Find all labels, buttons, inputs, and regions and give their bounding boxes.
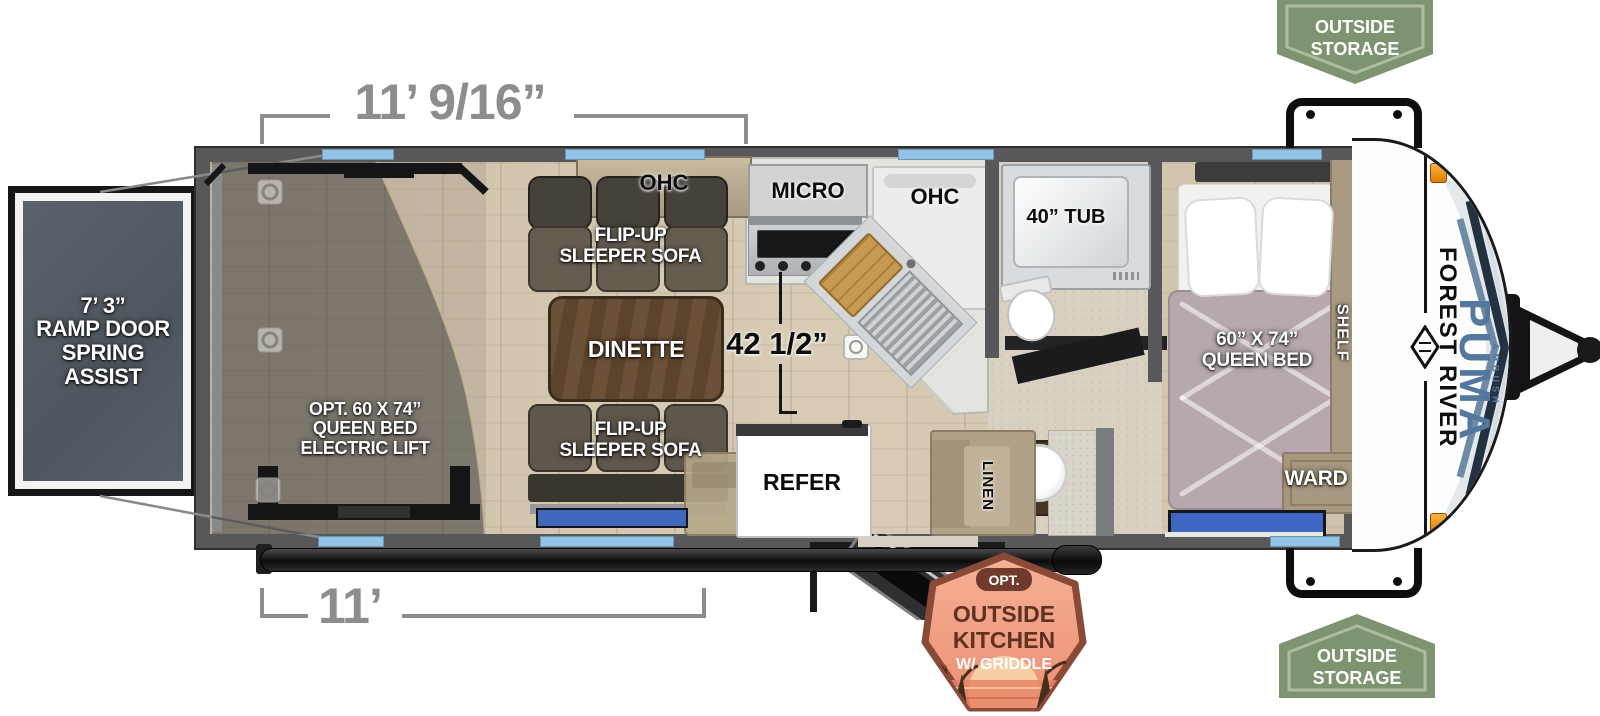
front-cap: FOREST RIVER PUMA AMBUSH xyxy=(1352,138,1512,552)
refrigerator-handle xyxy=(842,420,862,428)
sofa-bottom-label-line1: FLIP-UP xyxy=(595,419,667,440)
linen-cabinet-face: LINEN xyxy=(964,446,1010,526)
window-top-1 xyxy=(322,149,394,160)
outside-kitchen-badge: OPT. OUTSIDE KITCHEN W/ GRIDDLE xyxy=(918,552,1090,716)
dinette-table: DINETTE xyxy=(548,296,724,402)
garage-label-line2: QUEEN BED xyxy=(313,418,417,438)
ramp-door: 7’ 3” RAMP DOOR SPRING ASSIST xyxy=(8,186,198,496)
top-dim-seg-right xyxy=(574,114,746,118)
outside-kitchen-line3: W/ GRIDDLE xyxy=(956,656,1052,673)
top-dim-tick-right xyxy=(744,114,748,144)
brand-rule-top xyxy=(1424,153,1427,313)
bottom-dim-tick-right xyxy=(702,588,706,618)
sofa-bottom-label-line2: SLEEPER SOFA xyxy=(559,440,701,461)
window-bottom-1 xyxy=(318,536,384,547)
wardrobe-label-text: WARD xyxy=(1285,468,1348,491)
ohc-left-label: OHC xyxy=(624,170,704,196)
bottom-dim-tick-left xyxy=(260,588,264,618)
storage-top-line2: STORAGE xyxy=(1311,39,1400,59)
ramp-label-line1: 7’ 3” xyxy=(81,293,126,318)
ohc-left-label-text: OHC xyxy=(640,171,689,194)
ohc-right-label-text: OHC xyxy=(911,185,960,208)
kitchen-dim-line-lower xyxy=(779,364,782,414)
storage-bottom-line2: STORAGE xyxy=(1313,668,1402,688)
window-bottom-3 xyxy=(1270,536,1340,547)
bed-pillow-left xyxy=(1183,196,1260,298)
window-top-3 xyxy=(898,149,994,160)
roof-rack-bottom xyxy=(1286,548,1422,598)
sofa-bottom-label: FLIP-UP SLEEPER SOFA xyxy=(538,420,723,461)
bottom-dim-seg-left xyxy=(262,614,308,618)
refrigerator-label: REFER xyxy=(742,468,862,496)
sofa-top-label: FLIP-UP SLEEPER SOFA xyxy=(538,226,723,267)
tub-label-text: 40” TUB xyxy=(1027,207,1106,228)
bottom-dim-seg-right xyxy=(402,614,704,618)
entry-door-sill xyxy=(858,536,978,547)
garage-bed-label: OPT. 60 X 74” QUEEN BED ELECTRIC LIFT xyxy=(280,400,450,458)
outside-kitchen-opt: OPT. xyxy=(988,572,1019,588)
top-dim-tick-left xyxy=(260,114,264,144)
wardrobe-label: WARD xyxy=(1280,466,1352,492)
roof-rack-top xyxy=(1286,98,1422,148)
bottom-dim-text: 11’ xyxy=(300,578,400,634)
garage-label-line3: ELECTRIC LIFT xyxy=(300,438,429,458)
ramp-label-line3: SPRING xyxy=(62,340,145,365)
shelf-label: SHELF xyxy=(1330,294,1354,372)
linen-cabinet: LINEN xyxy=(930,430,1036,536)
outside-kitchen-line1: OUTSIDE xyxy=(953,601,1055,627)
garage-lining xyxy=(212,164,222,532)
ramp-label-line2: RAMP DOOR xyxy=(36,316,170,341)
kitchen-dim-value: 42 1/2” xyxy=(726,328,828,361)
brand-rule-bottom xyxy=(1424,381,1427,541)
storage-top-line1: OUTSIDE xyxy=(1315,17,1395,37)
top-dim-value: 11’ 9/16” xyxy=(354,73,545,131)
bath-partition-wall xyxy=(1096,428,1114,536)
refer-label-text: REFER xyxy=(763,470,841,494)
bottom-dim-value: 11’ xyxy=(318,577,382,635)
queen-bed-label-line2: QUEEN BED xyxy=(1202,350,1312,371)
clearance-light-bottom xyxy=(1430,513,1447,533)
dinette-label: DINETTE xyxy=(588,337,684,362)
floorplan-canvas: 7’ 3” RAMP DOOR SPRING ASSIST xyxy=(0,0,1600,716)
storage-bottom-line1: OUTSIDE xyxy=(1317,646,1397,666)
top-dim-text: 11’ 9/16” xyxy=(330,76,570,128)
window-bottom-2 xyxy=(540,536,674,547)
tub-label: 40” TUB xyxy=(1006,204,1126,230)
sofa-top-label-line2: SLEEPER SOFA xyxy=(559,246,701,267)
bed-headboard xyxy=(1195,162,1335,182)
kitchen-dim-text: 42 1/2” xyxy=(712,326,842,362)
bed-pillow-right xyxy=(1257,196,1334,298)
bath-wall-left xyxy=(985,150,999,358)
garage-label-line1: OPT. 60 X 74” xyxy=(309,399,421,419)
sofa-bottom-bed-board xyxy=(536,508,688,528)
ramp-door-panel: 7’ 3” RAMP DOOR SPRING ASSIST xyxy=(23,201,183,481)
range-hood-vent xyxy=(748,216,862,224)
queen-bed-label: 60” X 74” QUEEN BED xyxy=(1186,330,1328,371)
brand-series: AMBUSH xyxy=(1489,305,1502,445)
queen-bed-label-line1: 60” X 74” xyxy=(1216,329,1298,350)
window-top-2 xyxy=(565,149,705,160)
brand-model: PUMA xyxy=(1456,261,1492,481)
window-top-4 xyxy=(1252,149,1322,160)
clearance-light-top xyxy=(1430,163,1447,183)
micro-label: MICRO xyxy=(771,179,844,202)
kitchen-dim-line-upper xyxy=(779,272,782,324)
outside-storage-badge-bottom: OUTSIDE STORAGE xyxy=(1277,612,1437,702)
outside-storage-badge-top: OUTSIDE STORAGE xyxy=(1275,0,1435,86)
ohc-right-label: OHC xyxy=(900,184,970,210)
kitchen-dim-tick xyxy=(779,411,797,414)
linen-label: LINEN xyxy=(979,448,995,524)
outside-kitchen-line2: KITCHEN xyxy=(953,627,1055,653)
microwave: MICRO xyxy=(748,164,868,218)
ramp-label-line4: ASSIST xyxy=(64,364,142,389)
tub-faucet-icon xyxy=(1113,272,1139,280)
top-dim-seg-left xyxy=(262,114,330,118)
sofa-top-label-line1: FLIP-UP xyxy=(595,225,667,246)
